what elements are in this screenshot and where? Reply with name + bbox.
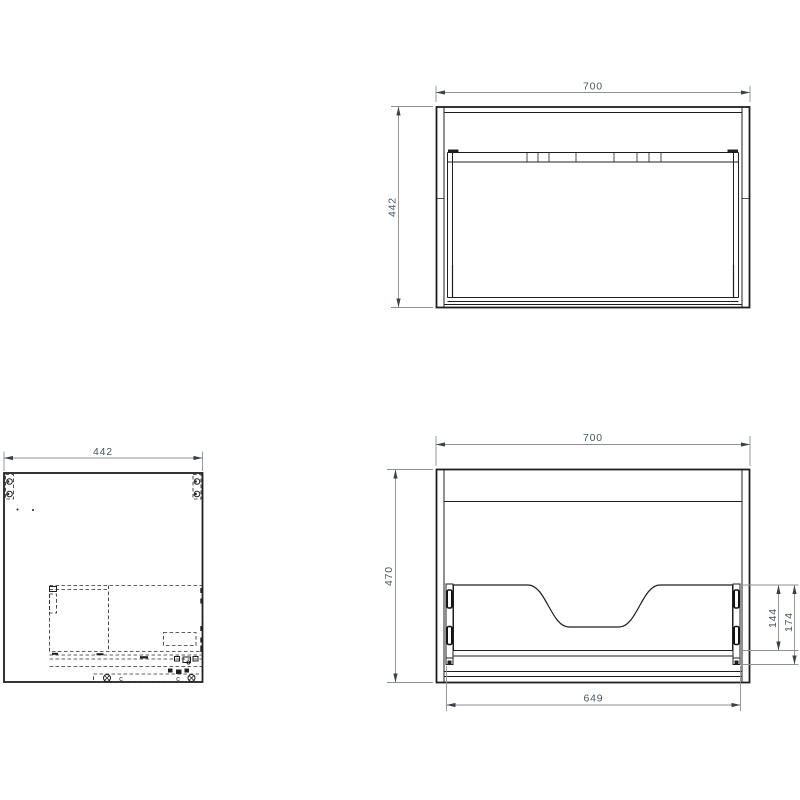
side-cam-fittings-left bbox=[6, 475, 14, 500]
plan-cabinet-outline bbox=[437, 107, 750, 308]
sink-cutout-curve bbox=[454, 585, 733, 627]
plan-depth-label: 442 bbox=[387, 197, 399, 217]
plan-dim-width: 700 bbox=[436, 81, 750, 103]
front-dim-height: 470 bbox=[383, 470, 433, 683]
plan-corner-bracket-right bbox=[728, 150, 739, 153]
side-panel-view: 442 bbox=[4, 446, 203, 683]
side-marker-left: c bbox=[119, 674, 123, 683]
side-dowel-marks bbox=[17, 509, 35, 512]
front-height-label: 470 bbox=[383, 566, 395, 586]
side-cam-fittings-right bbox=[193, 475, 201, 500]
plan-width-label: 700 bbox=[583, 81, 603, 93]
plan-dim-depth: 442 bbox=[387, 107, 434, 308]
technical-drawing-canvas: 700 442 bbox=[0, 0, 800, 800]
plan-drawer-box bbox=[448, 150, 739, 302]
cam-lock-icon bbox=[188, 675, 195, 682]
cad-drawing-sheet: 700 442 bbox=[0, 0, 800, 800]
side-dim-depth: 442 bbox=[4, 446, 203, 471]
front-dim-width: 700 bbox=[436, 432, 750, 466]
side-depth-label: 442 bbox=[93, 446, 113, 458]
front-dim-rail-offset: 144 bbox=[767, 585, 781, 651]
cam-lock-icon bbox=[104, 675, 111, 682]
front-dim-bracket-offset: 174 bbox=[783, 585, 797, 665]
front-drawer-slide-left bbox=[446, 584, 453, 665]
front-bracket-offset-label: 174 bbox=[783, 612, 795, 632]
side-panel-outline bbox=[4, 473, 203, 682]
front-drawer-back-panel bbox=[454, 585, 733, 656]
front-view: 700 470 bbox=[383, 432, 799, 711]
front-width-label: 700 bbox=[583, 432, 603, 444]
drawer-bottom-rail bbox=[454, 651, 733, 657]
side-drawer-slide-hidden bbox=[50, 586, 203, 653]
plan-view: 700 442 bbox=[387, 81, 751, 308]
front-dim-inner-width: 649 bbox=[447, 666, 741, 711]
plan-corner-bracket-left bbox=[448, 150, 459, 153]
side-bottom-rail-hidden bbox=[50, 653, 203, 674]
side-marker-right: c bbox=[176, 674, 180, 683]
front-rail-offset-label: 144 bbox=[767, 608, 779, 628]
front-drawer-slide-right bbox=[733, 584, 740, 665]
front-inner-width-label: 649 bbox=[584, 693, 604, 705]
